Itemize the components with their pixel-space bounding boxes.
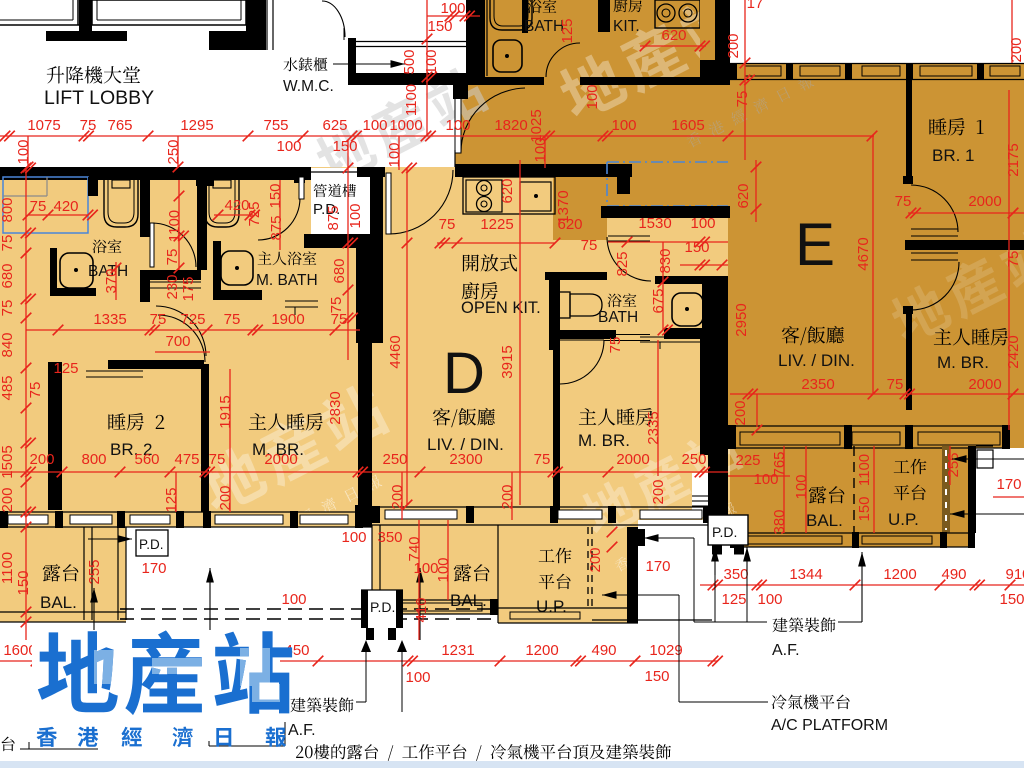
svg-text:1505: 1505 — [0, 445, 16, 478]
svg-text:490: 490 — [591, 642, 616, 659]
svg-text:680: 680 — [0, 263, 16, 288]
svg-text:150: 150 — [644, 668, 669, 685]
svg-text:BAL.: BAL. — [40, 593, 77, 612]
svg-text:2950: 2950 — [733, 303, 750, 336]
svg-text:75: 75 — [209, 451, 226, 468]
svg-text:625: 625 — [322, 117, 347, 134]
svg-text:100: 100 — [281, 591, 306, 608]
svg-text:75: 75 — [534, 451, 551, 468]
svg-text:170: 170 — [996, 476, 1021, 493]
svg-text:1605: 1605 — [671, 117, 704, 134]
svg-text:200: 200 — [650, 479, 667, 504]
svg-text:1200: 1200 — [525, 642, 558, 659]
svg-text:1915: 1915 — [217, 395, 234, 428]
svg-text:1100: 1100 — [403, 84, 420, 116]
svg-text:100: 100 — [440, 0, 465, 17]
svg-text:2000: 2000 — [968, 376, 1001, 393]
svg-text:560: 560 — [134, 451, 159, 468]
svg-text:200: 200 — [0, 487, 16, 512]
svg-text:125: 125 — [721, 591, 746, 608]
svg-text:800: 800 — [81, 451, 106, 468]
svg-text:1344: 1344 — [789, 566, 822, 583]
svg-text:2000: 2000 — [968, 193, 1001, 210]
svg-text:2335: 2335 — [645, 411, 662, 444]
svg-text:A.F.: A.F. — [288, 722, 316, 739]
svg-text:75: 75 — [895, 193, 912, 210]
svg-text:250: 250 — [382, 451, 407, 468]
svg-text:755: 755 — [263, 117, 288, 134]
svg-text:100: 100 — [386, 142, 403, 167]
svg-text:125: 125 — [53, 360, 78, 377]
svg-text:75: 75 — [439, 216, 456, 233]
svg-text:100: 100 — [584, 84, 601, 109]
svg-text:2175: 2175 — [1005, 143, 1022, 176]
svg-text:75: 75 — [30, 198, 47, 215]
svg-text:2420: 2420 — [1005, 335, 1022, 368]
svg-text:200: 200 — [29, 451, 54, 468]
svg-text:75: 75 — [607, 337, 624, 354]
svg-text:17: 17 — [747, 0, 764, 12]
svg-text:200: 200 — [732, 400, 749, 425]
svg-text:U.P.: U.P. — [536, 597, 567, 616]
svg-text:700: 700 — [165, 333, 190, 350]
svg-text:100: 100 — [405, 669, 430, 686]
svg-text:75: 75 — [0, 300, 16, 317]
svg-text:800: 800 — [0, 197, 16, 222]
svg-text:150: 150 — [267, 183, 284, 208]
svg-text:75: 75 — [80, 117, 97, 134]
svg-text:LIV. / DIN.: LIV. / DIN. — [778, 351, 855, 370]
svg-text:M. BR.: M. BR. — [937, 353, 989, 372]
svg-text:725: 725 — [246, 201, 263, 226]
svg-text:100: 100 — [341, 529, 366, 546]
svg-text:1600: 1600 — [3, 642, 36, 659]
svg-text:675: 675 — [650, 288, 667, 313]
svg-text:4670: 4670 — [855, 237, 872, 270]
svg-text:255: 255 — [86, 559, 103, 584]
svg-text:875: 875 — [325, 205, 342, 230]
svg-text:1100: 1100 — [0, 552, 16, 584]
svg-text:1820: 1820 — [494, 117, 527, 134]
svg-text:1231: 1231 — [441, 642, 474, 659]
svg-text:BATH: BATH — [598, 309, 638, 326]
svg-text:200: 200 — [587, 547, 604, 572]
svg-text:LIFT LOBBY: LIFT LOBBY — [44, 87, 154, 109]
svg-text:200: 200 — [725, 33, 742, 58]
svg-text:840: 840 — [0, 332, 16, 357]
svg-text:250: 250 — [681, 451, 706, 468]
svg-text:P.D.: P.D. — [139, 537, 164, 552]
svg-text:U.P.: U.P. — [888, 510, 919, 529]
svg-text:100: 100 — [690, 215, 715, 232]
svg-text:830: 830 — [657, 248, 674, 273]
svg-text:150: 150 — [332, 138, 357, 155]
svg-text:150: 150 — [856, 496, 873, 521]
svg-text:200: 200 — [1008, 37, 1024, 62]
svg-text:2350: 2350 — [801, 376, 834, 393]
svg-text:1000: 1000 — [389, 117, 422, 134]
svg-text:875: 875 — [268, 215, 285, 240]
svg-text:75: 75 — [224, 311, 241, 328]
svg-text:200: 200 — [389, 484, 406, 509]
svg-text:75: 75 — [887, 376, 904, 393]
svg-text:500: 500 — [401, 49, 418, 74]
svg-text:4460: 4460 — [387, 335, 404, 368]
svg-text:100: 100 — [611, 117, 636, 134]
svg-text:1295: 1295 — [180, 117, 213, 134]
svg-text:620: 620 — [499, 178, 516, 203]
svg-text:M. BATH: M. BATH — [256, 272, 318, 289]
svg-text:350: 350 — [723, 566, 748, 583]
svg-text:1200: 1200 — [883, 566, 916, 583]
svg-text:100: 100 — [347, 203, 364, 228]
svg-text:1530: 1530 — [638, 215, 671, 232]
svg-text:100: 100 — [532, 137, 549, 162]
svg-text:230: 230 — [164, 274, 181, 299]
svg-text:825: 825 — [614, 251, 631, 276]
svg-text:1370: 1370 — [555, 190, 572, 223]
svg-text:75: 75 — [0, 235, 16, 252]
svg-text:100: 100 — [793, 474, 810, 499]
svg-text:725: 725 — [180, 311, 205, 328]
svg-text:75: 75 — [734, 91, 751, 108]
svg-text:M. BR.: M. BR. — [578, 431, 630, 450]
svg-text:100: 100 — [362, 117, 387, 134]
svg-text:175: 175 — [180, 276, 197, 301]
svg-text:620: 620 — [735, 183, 752, 208]
svg-text:170: 170 — [645, 558, 670, 575]
svg-text:1225: 1225 — [480, 216, 513, 233]
svg-text:380: 380 — [771, 509, 788, 534]
svg-text:1335: 1335 — [93, 311, 126, 328]
svg-text:125: 125 — [559, 18, 576, 43]
svg-text:125: 125 — [163, 487, 180, 512]
svg-text:A/C PLATFORM: A/C PLATFORM — [771, 717, 888, 734]
svg-text:2300: 2300 — [449, 451, 482, 468]
svg-text:765: 765 — [107, 117, 132, 134]
svg-text:D: D — [443, 341, 485, 406]
svg-text:P.D.: P.D. — [370, 599, 395, 615]
svg-text:410: 410 — [413, 597, 430, 622]
svg-text:475: 475 — [174, 451, 199, 468]
svg-text:BAL.: BAL. — [806, 511, 843, 530]
svg-text:100: 100 — [757, 591, 782, 608]
svg-text:1075: 1075 — [27, 117, 60, 134]
svg-text:E: E — [795, 211, 835, 278]
svg-text:200: 200 — [499, 484, 516, 509]
svg-text:740: 740 — [406, 536, 423, 561]
svg-text:420: 420 — [53, 198, 78, 215]
svg-text:OPEN KIT.: OPEN KIT. — [461, 299, 541, 317]
svg-text:1100: 1100 — [166, 210, 183, 242]
svg-text:P.D.: P.D. — [712, 524, 737, 540]
svg-text:225: 225 — [735, 452, 760, 469]
svg-text:A.F.: A.F. — [772, 642, 800, 659]
svg-text:100: 100 — [435, 557, 452, 582]
svg-text:150: 150 — [684, 239, 709, 256]
svg-text:100: 100 — [15, 139, 32, 164]
svg-text:620: 620 — [661, 27, 686, 44]
svg-text:200: 200 — [217, 485, 234, 510]
svg-text:75: 75 — [1005, 251, 1022, 268]
svg-text:75: 75 — [27, 382, 44, 399]
svg-text:2000: 2000 — [616, 451, 649, 468]
svg-text:680: 680 — [331, 258, 348, 283]
svg-text:100: 100 — [423, 49, 440, 74]
svg-text:485: 485 — [0, 375, 16, 400]
svg-text:255: 255 — [945, 452, 962, 477]
svg-text:100: 100 — [445, 117, 470, 134]
svg-text:2000: 2000 — [264, 451, 297, 468]
svg-text:250: 250 — [165, 139, 182, 164]
svg-text:W.M.C.: W.M.C. — [283, 78, 334, 95]
svg-text:75: 75 — [581, 237, 598, 254]
svg-text:765: 765 — [771, 451, 788, 476]
svg-text:BR. 1: BR. 1 — [932, 146, 975, 165]
svg-text:350: 350 — [377, 529, 402, 546]
svg-text:2830: 2830 — [327, 391, 344, 424]
svg-text:150: 150 — [999, 591, 1024, 608]
svg-text:1900: 1900 — [271, 311, 304, 328]
svg-text:3915: 3915 — [499, 345, 516, 378]
svg-text:1029: 1029 — [649, 642, 682, 659]
svg-text:1100: 1100 — [856, 454, 873, 486]
svg-text:150: 150 — [15, 570, 32, 595]
svg-text:170: 170 — [141, 560, 166, 577]
svg-text:100: 100 — [276, 138, 301, 155]
svg-text:KIT.: KIT. — [613, 18, 640, 35]
